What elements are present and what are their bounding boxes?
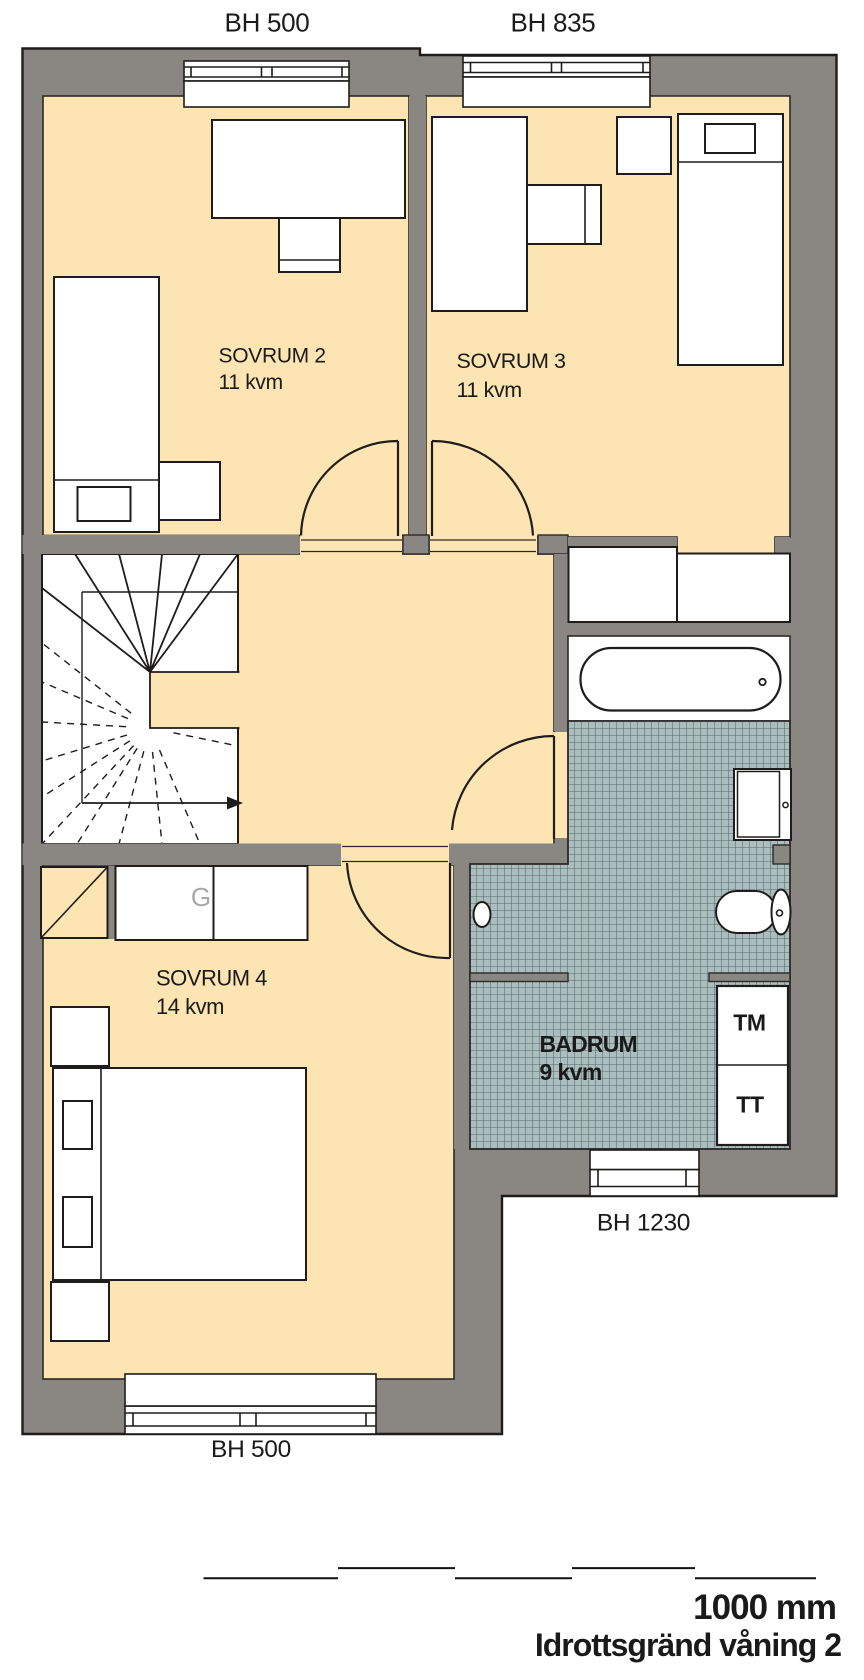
svg-text:G: G [191, 882, 211, 912]
svg-text:BADRUM: BADRUM [540, 1031, 637, 1057]
svg-text:BH 835: BH 835 [511, 8, 596, 38]
svg-text:BH 500: BH 500 [225, 8, 310, 38]
svg-text:11 kvm: 11 kvm [457, 378, 522, 402]
svg-text:SOVRUM 4: SOVRUM 4 [156, 966, 267, 991]
svg-text:BH 1230: BH 1230 [597, 1210, 690, 1237]
svg-text:SOVRUM 2: SOVRUM 2 [219, 345, 326, 368]
svg-text:1000 mm: 1000 mm [693, 1588, 836, 1627]
svg-text:11 kvm: 11 kvm [219, 371, 283, 394]
svg-text:TM: TM [733, 1010, 766, 1036]
svg-text:SOVRUM 3: SOVRUM 3 [457, 349, 567, 373]
svg-text:9 kvm: 9 kvm [540, 1059, 602, 1085]
svg-text:TT: TT [736, 1092, 764, 1118]
svg-text:Idrottsgränd våning 2: Idrottsgränd våning 2 [535, 1627, 841, 1663]
svg-text:14 kvm: 14 kvm [156, 994, 224, 1019]
svg-text:BH 500: BH 500 [211, 1436, 291, 1463]
